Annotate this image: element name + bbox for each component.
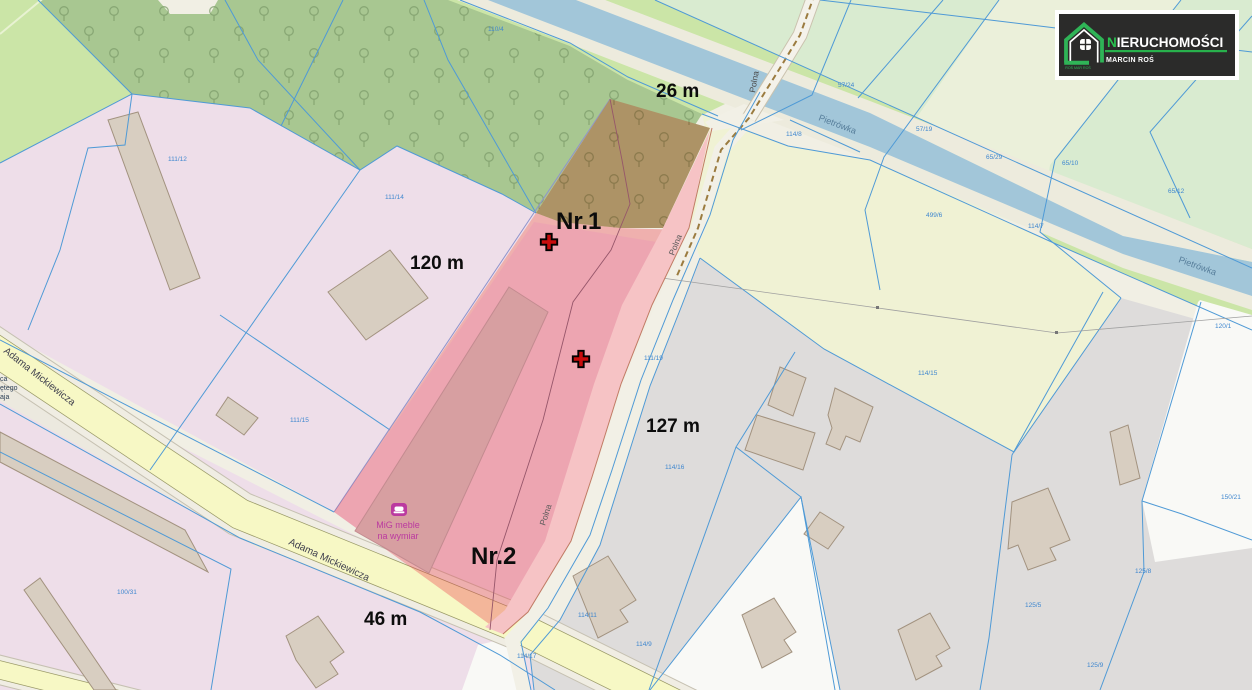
svg-text:114/15: 114/15: [918, 370, 938, 377]
svg-text:127 m: 127 m: [646, 416, 700, 437]
svg-text:114/11: 114/11: [578, 612, 597, 619]
svg-text:110/4: 110/4: [488, 26, 504, 33]
svg-text:Nr.2: Nr.2: [471, 543, 516, 570]
svg-text:57/19: 57/19: [916, 126, 933, 133]
svg-text:MARCIN ROŚ: MARCIN ROŚ: [1106, 55, 1154, 64]
svg-text:111/14: 111/14: [385, 194, 404, 201]
svg-text:120/1: 120/1: [1215, 323, 1232, 330]
svg-text:114/9: 114/9: [636, 641, 652, 648]
svg-text:111/12: 111/12: [168, 156, 187, 163]
svg-text:499/6: 499/6: [926, 212, 943, 219]
svg-text:65/12: 65/12: [1168, 188, 1185, 195]
svg-text:MiG meble: MiG meble: [376, 520, 420, 530]
svg-text:NIERUCHOMOŚCI: NIERUCHOMOŚCI: [1107, 35, 1223, 50]
svg-text:114/7: 114/7: [1028, 223, 1044, 230]
svg-text:65/10: 65/10: [1062, 160, 1079, 167]
svg-text:125/9: 125/9: [1087, 662, 1104, 669]
svg-text:ętego: ętego: [0, 385, 18, 392]
svg-text:100/31: 100/31: [117, 589, 137, 596]
svg-text:65/29: 65/29: [986, 154, 1003, 161]
svg-text:114/8: 114/8: [786, 131, 802, 138]
svg-text:111/15: 111/15: [290, 417, 309, 424]
svg-text:150/21: 150/21: [1221, 494, 1241, 501]
svg-text:aja: aja: [0, 394, 9, 401]
svg-text:125/8: 125/8: [1135, 568, 1152, 575]
svg-text:111/19: 111/19: [644, 355, 663, 362]
svg-text:46 m: 46 m: [364, 609, 407, 630]
svg-text:114/16: 114/16: [665, 464, 685, 471]
svg-text:ROŚ MAR ROŚ: ROŚ MAR ROŚ: [1065, 65, 1091, 70]
svg-text:na wymiar: na wymiar: [377, 531, 418, 541]
svg-text:26 m: 26 m: [656, 81, 699, 102]
svg-text:ca: ca: [0, 376, 8, 383]
svg-text:114/17: 114/17: [517, 653, 537, 660]
svg-text:120 m: 120 m: [410, 253, 464, 274]
svg-text:57/24: 57/24: [838, 82, 855, 89]
svg-text:125/5: 125/5: [1025, 602, 1042, 609]
svg-text:Nr.1: Nr.1: [556, 208, 601, 235]
